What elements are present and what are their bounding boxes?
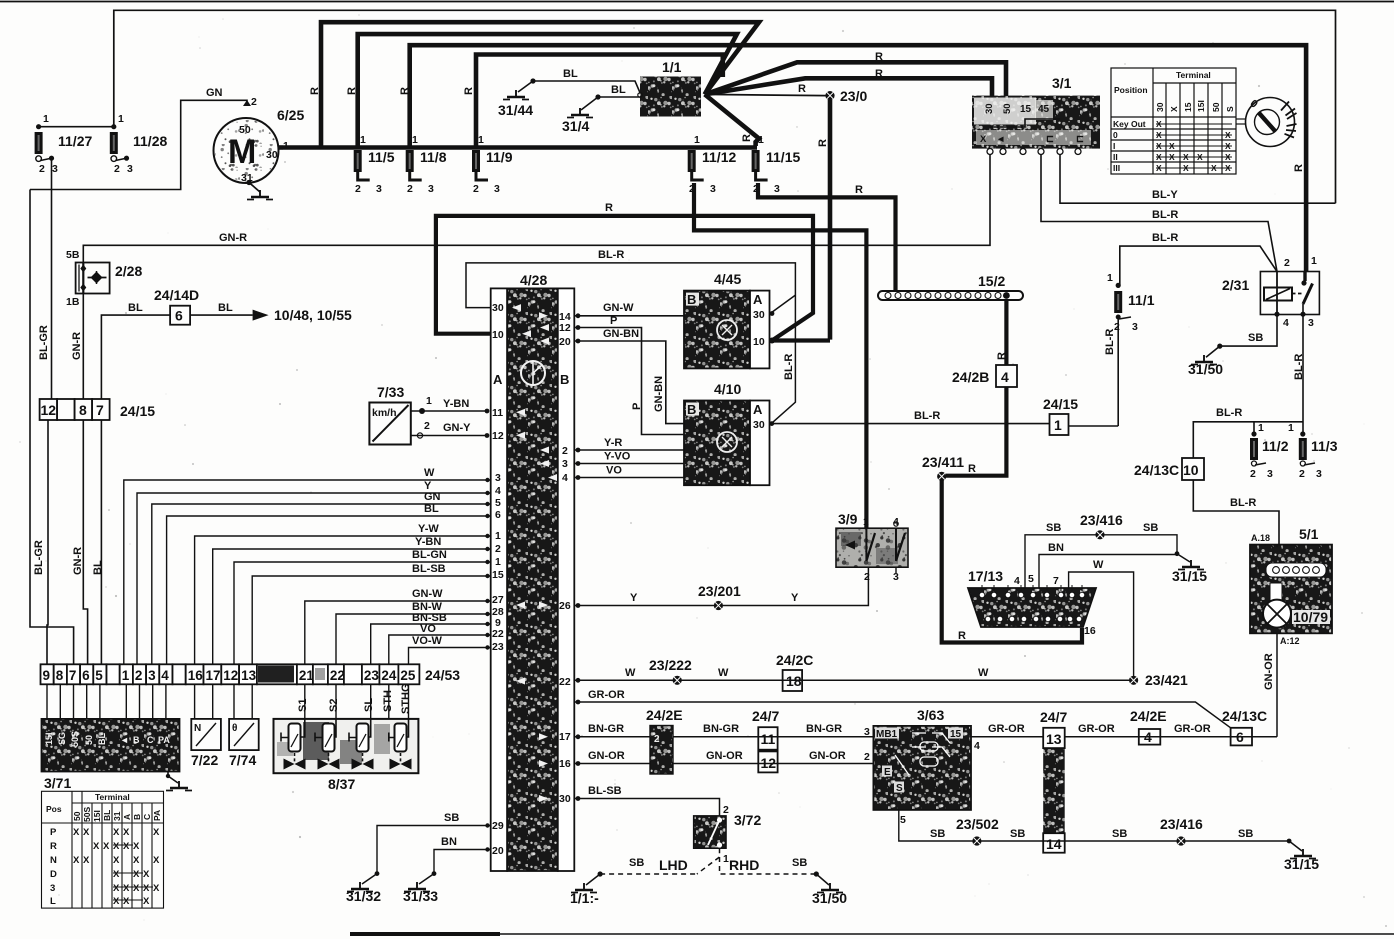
svg-text:X: X [133,855,140,866]
svg-text:L: L [50,896,56,907]
svg-text:50: 50 [84,735,94,745]
svg-text:24/13C: 24/13C [1222,708,1267,724]
svg-text:4: 4 [974,740,980,752]
svg-text:R: R [399,87,411,95]
svg-text:4: 4 [495,485,501,497]
svg-text:BL-R: BL-R [1230,497,1256,509]
svg-text:2: 2 [1284,257,1290,269]
svg-text:1: 1 [1258,422,1264,434]
svg-text:BL-R: BL-R [1293,354,1305,380]
svg-text:BL-R: BL-R [1152,209,1178,221]
svg-text:D: D [50,869,57,880]
svg-text:30: 30 [492,302,504,314]
svg-text:11/9: 11/9 [486,149,513,165]
svg-text:GN-BN: GN-BN [653,376,665,412]
svg-text:X: X [153,883,160,894]
svg-text:R: R [968,463,976,475]
svg-text:16: 16 [188,668,204,683]
svg-text:Y-BN: Y-BN [415,536,441,548]
svg-text:Y-W: Y-W [418,523,439,535]
svg-text:24/53: 24/53 [425,667,460,683]
svg-text:11/1: 11/1 [1128,292,1155,308]
svg-text:7: 7 [1053,575,1059,587]
svg-text:10/79: 10/79 [1293,609,1328,625]
svg-text:3: 3 [1267,468,1273,480]
svg-text:W: W [424,467,435,479]
svg-text:5: 5 [95,668,103,683]
svg-text:4/28: 4/28 [520,272,547,288]
svg-text:BL: BL [563,68,578,80]
svg-text:⊏: ⊏ [1076,134,1084,145]
svg-text:X: X [153,827,160,838]
svg-text:4/10: 4/10 [714,381,741,397]
svg-text:BL-GR: BL-GR [38,325,50,360]
svg-text:4: 4 [562,472,568,484]
svg-text:θ: θ [232,723,237,734]
svg-text:X: X [980,134,987,145]
svg-text:BL-R: BL-R [1152,232,1178,244]
svg-text:50: 50 [1002,103,1013,114]
svg-text:23/416: 23/416 [1080,512,1123,528]
svg-text:2: 2 [473,183,479,195]
svg-text:GN: GN [424,491,441,503]
svg-text:GN-W: GN-W [603,302,634,314]
svg-text:15: 15 [950,729,962,740]
svg-text:31: 31 [112,811,122,821]
svg-text:2: 2 [1299,468,1305,480]
svg-text:15: 15 [1020,104,1032,115]
svg-text:17/13: 17/13 [968,568,1003,584]
svg-text:1: 1 [1054,417,1062,433]
svg-text:BN: BN [1048,542,1064,554]
svg-text:BL: BL [611,84,626,96]
svg-text:23: 23 [364,668,380,683]
svg-text:20: 20 [559,336,571,348]
svg-text:BL-SB: BL-SB [412,563,446,575]
svg-text:23/411: 23/411 [922,454,964,470]
svg-text:23/0: 23/0 [840,88,867,104]
svg-text:3: 3 [1132,321,1138,333]
svg-text:24/13C: 24/13C [1134,462,1179,478]
svg-text:GR-OR: GR-OR [588,689,625,701]
svg-text:3: 3 [376,183,382,195]
svg-text:31/15: 31/15 [1284,856,1319,872]
svg-text:STH: STH [382,690,394,712]
svg-text:B: B [687,292,696,307]
svg-text:SB: SB [1010,828,1025,840]
svg-text:1: 1 [122,668,130,683]
svg-text:24/2E: 24/2E [646,707,683,723]
svg-text:24/7: 24/7 [1040,709,1067,725]
svg-text:3: 3 [710,183,716,195]
svg-text:R: R [875,51,883,63]
svg-text:8: 8 [79,402,87,418]
svg-text:1: 1 [412,134,418,146]
svg-text:1: 1 [495,556,501,568]
svg-text:X: X [83,855,90,866]
svg-text:BL: BL [102,810,112,821]
svg-text:X: X [83,827,90,838]
svg-text:4: 4 [1014,575,1020,587]
svg-text:B: B [133,735,140,745]
svg-text:N: N [50,855,57,866]
svg-text:X: X [93,841,100,852]
svg-text:30: 30 [753,309,765,321]
svg-text:50: 50 [1211,102,1221,112]
svg-text:23/502: 23/502 [956,816,999,832]
svg-text:2: 2 [407,183,413,195]
svg-text:R: R [798,83,806,95]
svg-text:W: W [625,667,636,679]
svg-text:P: P [50,827,57,838]
svg-text:31/15: 31/15 [1172,568,1207,584]
svg-text:21: 21 [299,668,315,683]
svg-text:1: 1 [495,530,501,542]
svg-text:Key Out: Key Out [1113,119,1146,129]
svg-text:7/22: 7/22 [191,752,218,768]
svg-text:X: X [123,841,130,852]
svg-text:RHD: RHD [729,857,759,873]
svg-text:1B: 1B [66,296,80,308]
svg-text:5: 5 [1028,573,1034,585]
svg-text:2: 2 [723,804,729,816]
svg-text:3: 3 [495,472,501,484]
svg-text:29: 29 [492,820,504,832]
svg-text:11: 11 [761,731,776,747]
svg-text:S: S [896,783,903,794]
svg-text:M: M [228,133,256,171]
svg-text:6: 6 [495,509,501,521]
svg-text:GN-BN: GN-BN [603,328,639,340]
svg-text:3: 3 [494,183,500,195]
svg-text:SB: SB [444,812,459,824]
svg-text:BL-R: BL-R [598,249,624,261]
svg-text:Position: Position [1114,85,1148,95]
svg-text:31/44: 31/44 [498,102,533,118]
svg-text:12: 12 [492,430,504,442]
svg-text:BL: BL [218,302,233,314]
svg-text:1/1:-: 1/1:- [570,890,599,906]
svg-text:◄: ◄ [996,134,1005,145]
svg-text:23/416: 23/416 [1160,816,1203,832]
svg-text:5/1: 5/1 [1299,526,1319,542]
svg-text:⊏: ⊏ [1046,134,1054,145]
svg-text:1: 1 [118,113,124,125]
svg-text:50S: 50S [70,731,80,747]
svg-text:7: 7 [96,402,104,418]
svg-text:SB: SB [1238,828,1253,840]
svg-text:31/4: 31/4 [562,118,589,134]
svg-text:10: 10 [492,329,504,341]
svg-text:Y-VO: Y-VO [604,451,631,463]
svg-text:2: 2 [562,445,568,457]
svg-text:50: 50 [72,811,82,821]
svg-text:18: 18 [786,673,802,689]
svg-text:GR-OR: GR-OR [1174,723,1211,735]
svg-text:W: W [718,667,729,679]
svg-text:23/201: 23/201 [698,583,741,599]
svg-text:BL: BL [97,733,107,745]
svg-text:X: X [113,855,120,866]
svg-text:6: 6 [1236,729,1244,745]
svg-text:3/63: 3/63 [917,707,944,723]
svg-text:Terminal: Terminal [95,792,130,802]
svg-text:8: 8 [56,668,64,683]
svg-text:X: X [123,896,130,907]
svg-text:10: 10 [1183,462,1199,478]
svg-text:GN-OR: GN-OR [809,750,846,762]
svg-text:GR-OR: GR-OR [988,723,1025,735]
svg-text:VO: VO [420,623,436,635]
svg-text:2/28: 2/28 [115,263,142,279]
svg-text:22: 22 [492,628,504,640]
svg-text:2: 2 [135,668,143,683]
svg-text:GN-OR: GN-OR [588,750,625,762]
svg-text:R: R [875,68,883,80]
svg-text:SG: SG [57,732,67,745]
svg-text:12: 12 [223,668,238,683]
svg-text:17: 17 [559,731,571,743]
svg-text:BN-GR: BN-GR [806,723,842,735]
svg-text:Y: Y [791,592,799,604]
svg-text:1: 1 [43,113,49,125]
svg-text:BN: BN [441,836,457,848]
svg-text:BN-GR: BN-GR [703,723,739,735]
svg-text:24/2E: 24/2E [1130,708,1167,724]
svg-text:10/48, 10/55: 10/48, 10/55 [274,307,352,323]
svg-text:7/74: 7/74 [229,752,256,768]
svg-text:0: 0 [1113,130,1118,140]
svg-text:2: 2 [495,543,501,555]
svg-text:12: 12 [761,755,777,771]
svg-text:B: B [687,402,696,417]
svg-text:13: 13 [1046,731,1062,747]
svg-text:GR-OR: GR-OR [1078,723,1115,735]
svg-text:STHG: STHG [400,683,412,714]
svg-text:R: R [50,841,57,852]
svg-text:S1: S1 [297,699,309,712]
svg-text:3: 3 [50,883,55,894]
svg-text:BL-R: BL-R [1104,329,1116,355]
svg-text:4/45: 4/45 [714,271,741,287]
svg-text:4: 4 [1144,729,1152,745]
svg-text:24/7: 24/7 [752,708,779,724]
svg-text:2: 2 [654,734,660,745]
svg-text:4: 4 [1001,369,1009,385]
svg-text:GN-R: GN-R [72,547,84,575]
svg-text:Terminal: Terminal [1176,70,1211,80]
svg-text:A: A [753,402,763,417]
svg-text:5B: 5B [66,249,80,261]
svg-text:1: 1 [426,395,432,407]
svg-text:31/32: 31/32 [346,888,381,904]
svg-text:24/15: 24/15 [1043,396,1078,412]
svg-text:3: 3 [864,726,870,738]
svg-text:X: X [113,827,120,838]
svg-text:11/15: 11/15 [766,149,800,165]
svg-text:GN-R: GN-R [219,232,247,244]
svg-text:GN-OR: GN-OR [706,750,743,762]
svg-text:5: 5 [495,497,501,509]
svg-text:P: P [631,403,643,410]
svg-text:3: 3 [1316,468,1322,480]
svg-text:15I: 15I [1196,100,1206,112]
svg-text:2: 2 [1250,468,1256,480]
svg-text:24/14D: 24/14D [154,287,199,303]
svg-text:9: 9 [43,668,51,683]
svg-text:BL-R: BL-R [1216,407,1242,419]
svg-text:BL-SB: BL-SB [588,785,622,797]
svg-text:III: III [1113,163,1120,173]
svg-text:E: E [884,767,891,778]
svg-text:2: 2 [39,163,45,175]
svg-text:B: B [132,814,142,820]
svg-text:X: X [143,896,150,907]
svg-text:Pos: Pos [46,804,62,814]
svg-text:20: 20 [492,845,504,857]
svg-text:SL: SL [363,698,375,712]
svg-text:11/8: 11/8 [420,149,447,165]
svg-text:II: II [1113,152,1118,162]
svg-text:8/37: 8/37 [328,776,355,792]
svg-text:A:12: A:12 [1280,636,1300,646]
svg-text:A: A [122,814,132,820]
svg-text:50S: 50S [82,807,92,822]
svg-text:BL-GR: BL-GR [33,540,45,575]
svg-text:6/25: 6/25 [277,107,304,123]
svg-text:GN-W: GN-W [412,588,443,600]
svg-text:23: 23 [492,641,504,653]
svg-text:SB: SB [1143,522,1158,534]
svg-text:I: I [1113,141,1115,151]
svg-text:PA: PA [152,810,162,821]
svg-text:C: C [142,814,152,820]
svg-text:12: 12 [559,322,571,334]
svg-text:3: 3 [148,668,156,683]
svg-text:13: 13 [241,668,257,683]
svg-text:A: A [753,292,763,307]
svg-text:11: 11 [492,407,503,419]
svg-text:11/12: 11/12 [702,149,736,165]
svg-text:1: 1 [1288,422,1294,434]
svg-text:B: B [560,372,569,387]
svg-text:11/28: 11/28 [133,133,167,149]
svg-text:1: 1 [694,134,700,146]
svg-text:R: R [741,134,753,142]
svg-text:22: 22 [559,676,571,688]
svg-text:4: 4 [161,668,169,683]
svg-text:30: 30 [984,103,995,114]
svg-text:BL: BL [128,302,143,314]
svg-text:C: C [147,735,154,745]
svg-text:3: 3 [562,458,568,470]
svg-text:W: W [1093,559,1104,571]
svg-text:X: X [133,841,140,852]
svg-text:2: 2 [424,420,430,432]
svg-text:27: 27 [492,594,504,606]
svg-text:1: 1 [863,516,869,528]
svg-text:10: 10 [753,336,765,348]
svg-text:BL-Y: BL-Y [1152,189,1178,201]
svg-text:30: 30 [1155,102,1165,112]
svg-text:3/9: 3/9 [838,511,858,527]
svg-text:S2: S2 [328,699,340,712]
svg-text:X: X [113,896,120,907]
svg-text:7/33: 7/33 [377,384,404,400]
svg-text:BL-R: BL-R [783,354,795,380]
svg-text:W: W [978,667,989,679]
svg-text:X: X [153,855,160,866]
svg-text:16: 16 [559,758,571,770]
svg-text:31/50: 31/50 [812,890,847,906]
svg-text:11/27: 11/27 [58,133,92,149]
svg-text:30: 30 [753,419,765,431]
svg-text:5: 5 [900,814,906,826]
svg-text:31/33: 31/33 [403,888,438,904]
svg-text:11/2: 11/2 [1262,438,1289,454]
svg-text:X: X [73,827,80,838]
svg-text:R: R [346,87,358,95]
svg-text:1: 1 [1311,255,1317,267]
svg-text:VO-W: VO-W [412,635,443,647]
svg-text:16: 16 [1084,625,1096,637]
svg-text:2: 2 [114,163,120,175]
svg-text:R: R [309,87,321,95]
svg-text:BL-R: BL-R [914,410,940,422]
svg-text:BL: BL [424,503,439,515]
svg-text:3: 3 [127,163,133,175]
svg-text:R: R [1293,164,1305,172]
svg-text:23/222: 23/222 [649,657,692,673]
svg-text:SB: SB [1248,332,1263,344]
svg-text:X: X [103,841,110,852]
svg-text:3: 3 [1308,317,1314,329]
svg-text:km/h: km/h [372,407,397,419]
svg-text:24/2C: 24/2C [776,652,813,668]
svg-text:X: X [113,841,120,852]
svg-text:S: S [1225,106,1235,112]
svg-text:X: X [143,869,150,880]
svg-text:1: 1 [1107,272,1113,284]
svg-text:PA: PA [158,735,170,745]
svg-text:R: R [605,202,613,214]
svg-text:Y-BN: Y-BN [443,398,469,410]
svg-text:30: 30 [266,149,278,161]
svg-text:15: 15 [1183,102,1193,112]
svg-text:X: X [143,883,150,894]
svg-text:24: 24 [381,668,397,683]
svg-text:31/50: 31/50 [1188,361,1223,377]
svg-text:◄: ◄ [120,735,129,745]
svg-text:2/31: 2/31 [1222,277,1249,293]
svg-text:X: X [113,869,120,880]
svg-text:50: 50 [239,124,251,136]
svg-text:X: X [1169,106,1179,112]
svg-text:23/421: 23/421 [1145,672,1188,688]
svg-text:SB: SB [930,828,945,840]
svg-text:14: 14 [1046,836,1062,852]
svg-text:1: 1 [283,140,289,152]
svg-text:6: 6 [82,668,90,683]
svg-text:SB: SB [792,857,807,869]
svg-text:R: R [996,352,1008,360]
svg-text:2: 2 [251,96,257,108]
svg-text:N: N [194,723,201,734]
svg-text:X: X [123,827,130,838]
svg-text:2: 2 [355,183,361,195]
svg-text:3: 3 [52,163,58,175]
svg-text:SB: SB [629,857,644,869]
